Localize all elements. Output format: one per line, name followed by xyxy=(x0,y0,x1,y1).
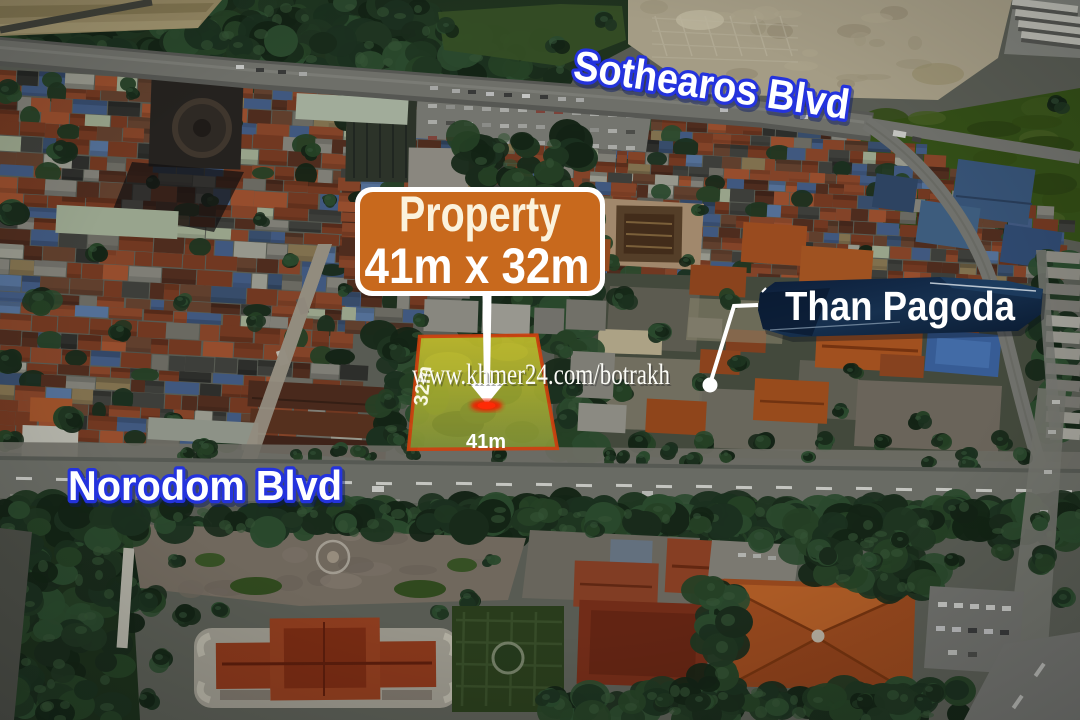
svg-text:www.khmer24.com/botrakh: www.khmer24.com/botrakh xyxy=(412,358,670,391)
svg-text:Norodom Blvd: Norodom Blvd xyxy=(68,462,342,509)
svg-text:41m: 41m xyxy=(466,431,506,453)
svg-text:41m x 32m: 41m x 32m xyxy=(365,238,590,294)
svg-text:Than Pagoda: Than Pagoda xyxy=(785,283,1016,329)
svg-text:Property: Property xyxy=(399,186,561,242)
